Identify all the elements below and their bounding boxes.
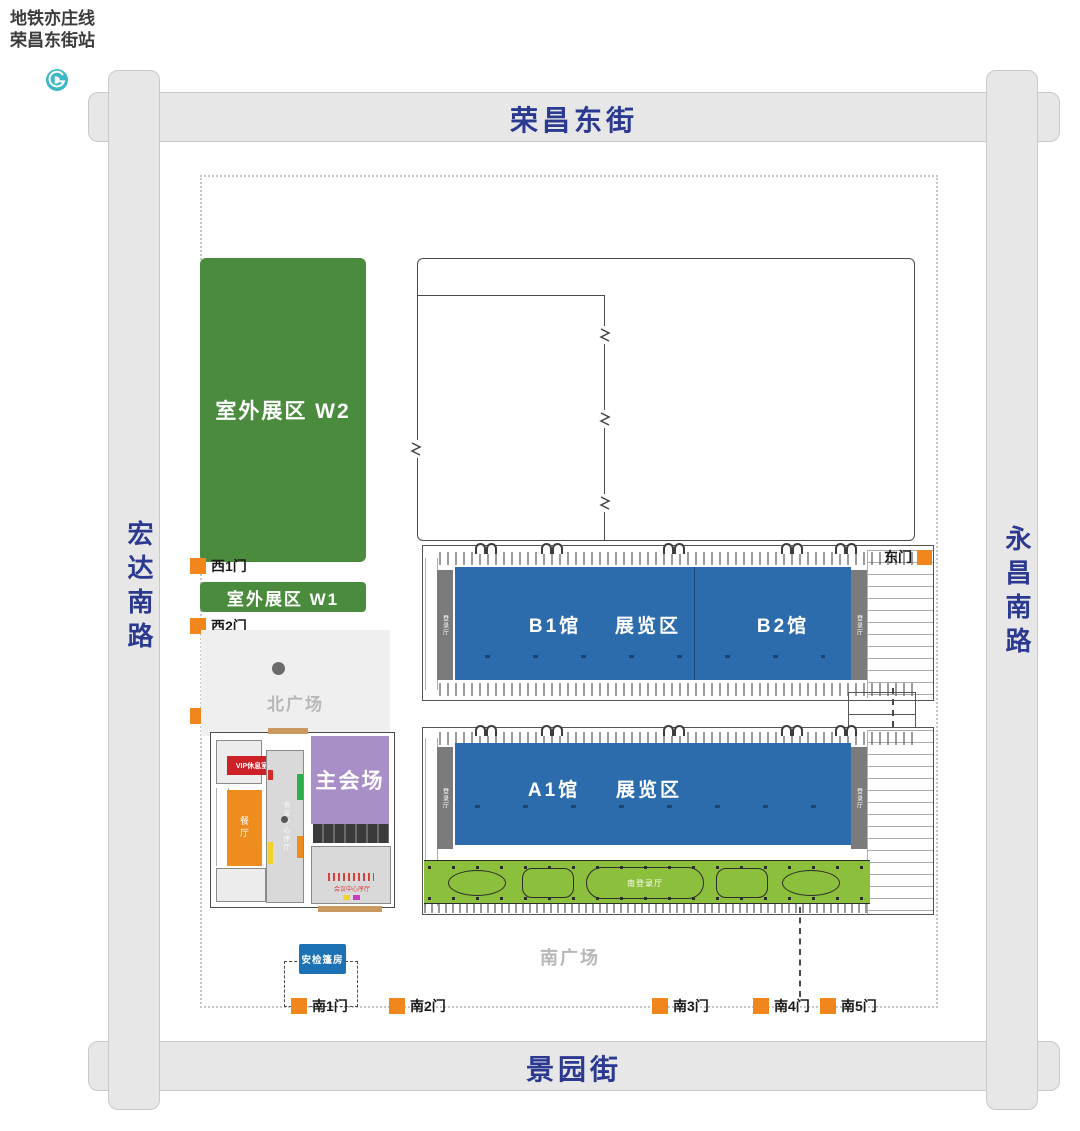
gate-west-1-label: 西1门 <box>211 556 247 576</box>
gate-south-5: 南5门 <box>820 996 877 1016</box>
metro-station-label: 地铁亦庄线 荣昌东街站 <box>10 8 95 52</box>
door-arch-icon <box>781 543 803 554</box>
gate-south-4: 南4门 <box>753 996 810 1016</box>
gate-east: 东门 <box>884 547 932 567</box>
door-arch-icon <box>475 543 497 554</box>
landscape-island <box>716 868 768 898</box>
south-plaza-label: 南广场 <box>515 944 625 970</box>
yellow-accent <box>343 895 350 900</box>
hall-column-dots <box>485 655 825 658</box>
landscape-strip: 南登录厅 <box>424 860 870 904</box>
gate-west-1: 西1门 <box>190 556 247 576</box>
door-arch-icon <box>541 725 563 736</box>
hall-a1-label: A1馆 <box>528 775 580 802</box>
floorplan-detail <box>849 714 915 715</box>
seating-hatch <box>313 824 389 843</box>
break-mark-icon <box>599 410 611 428</box>
planned-building-inner-outline <box>417 295 605 541</box>
north-plaza-dot <box>272 662 285 675</box>
red-tick-row <box>328 873 374 881</box>
door-arch-icon <box>835 725 857 736</box>
south-lobby-label: 南登录厅 <box>627 878 663 889</box>
entrance-canopy <box>318 906 382 912</box>
gate4-dash-line <box>799 907 801 997</box>
north-plaza-label: 北广场 <box>201 690 390 715</box>
break-mark-icon <box>599 326 611 344</box>
outdoor-area-w1-label: 室外展区 W1 <box>227 585 339 610</box>
gate-west-1-marker <box>190 558 206 574</box>
gate-south-2-marker <box>389 998 405 1014</box>
security-tent-label: 安检篷房 <box>301 952 343 966</box>
gate-south-2: 南2门 <box>389 996 446 1016</box>
main-venue: 主会场 <box>311 736 389 824</box>
gate-east-marker <box>917 550 932 565</box>
outdoor-area-w2: 室外展区 W2 <box>200 258 366 562</box>
conference-lobby-label: 会议中心序厅 <box>280 801 290 852</box>
street-label-south: 景园街 <box>88 1048 1060 1088</box>
landscape-island <box>448 870 506 896</box>
floorplan-detail <box>439 683 919 696</box>
registration-strip-label: 登录厅 <box>441 788 450 809</box>
street-label-east: 永昌南路 <box>999 525 1036 661</box>
gate-east-label: 东门 <box>884 547 912 567</box>
security-tent: 安检篷房 <box>299 944 346 974</box>
gate-south-4-marker <box>753 998 769 1014</box>
landscape-island <box>522 868 574 898</box>
floorplan-detail <box>424 904 870 913</box>
door-arch-icon <box>663 725 685 736</box>
registration-strip-label: 登录厅 <box>855 788 864 809</box>
metro-station-name: 荣昌东街站 <box>10 30 95 52</box>
gate-south-2-label: 南2门 <box>410 996 446 1016</box>
gate-south-5-label: 南5门 <box>841 996 877 1016</box>
gate-south-1: 南1门 <box>291 996 348 1016</box>
hall-b2-label: B2馆 <box>757 611 809 638</box>
green-accent <box>297 774 303 800</box>
corridor-dot <box>281 816 288 823</box>
magenta-accent <box>353 895 360 900</box>
hall-column-dots <box>475 805 831 808</box>
restaurant-label: 餐厅 <box>238 816 251 840</box>
door-arch-icon <box>475 725 497 736</box>
gate-south-4-label: 南4门 <box>774 996 810 1016</box>
restaurant: 餐厅 <box>227 790 262 866</box>
street-label-north: 荣昌东街 <box>88 99 1060 139</box>
registration-strip-a-left: 登录厅 <box>437 747 453 849</box>
main-venue-label: 主会场 <box>316 765 385 795</box>
red-accent <box>268 770 273 780</box>
gate-south-3-marker <box>652 998 668 1014</box>
subway-logo-icon <box>46 69 68 91</box>
registration-strip-label: 登录厅 <box>441 615 450 636</box>
north-plaza: 北广场 <box>201 630 390 736</box>
conference-lobby-small-label: 会议中心序厅 <box>312 884 392 893</box>
hall-a-zone-label: 展览区 <box>616 775 682 802</box>
hall-b1-label: B1馆 <box>529 611 581 638</box>
gate-south-1-marker <box>291 998 307 1014</box>
registration-strip-label: 登录厅 <box>855 615 864 636</box>
gate-south-5-marker <box>820 998 836 1014</box>
outdoor-area-w2-label: 室外展区 W2 <box>215 395 350 425</box>
hall-divider <box>694 567 695 680</box>
door-arch-icon <box>835 543 857 554</box>
door-arch-icon <box>663 543 685 554</box>
registration-strip-b-left: 登录厅 <box>437 570 453 680</box>
door-arch-icon <box>781 725 803 736</box>
outdoor-area-w1: 室外展区 W1 <box>200 582 366 612</box>
gate-south-3: 南3门 <box>652 996 709 1016</box>
registration-strip-b-right: 登录厅 <box>851 570 867 680</box>
break-mark-icon <box>410 440 422 458</box>
conference-room-block <box>216 868 266 902</box>
street-label-west: 宏达南路 <box>121 520 158 656</box>
yellow-accent <box>268 842 273 864</box>
gate-south-1-label: 南1门 <box>312 996 348 1016</box>
floorplan-detail <box>867 730 933 914</box>
orange-accent <box>297 836 303 858</box>
gate-south-3-label: 南3门 <box>673 996 709 1016</box>
conference-south-lobby: 会议中心序厅 <box>311 846 391 904</box>
hall-b-zone-label: 展览区 <box>615 611 681 638</box>
hall-a-floor: A1馆 展览区 <box>455 743 851 845</box>
south-lobby: 南登录厅 <box>586 867 704 899</box>
registration-strip-a-right: 登录厅 <box>851 747 867 849</box>
metro-line-name: 地铁亦庄线 <box>10 8 95 30</box>
vip-lounge-label: VIP休息室 <box>236 761 268 771</box>
hall-b-floor: B1馆 展览区 B2馆 <box>455 567 851 680</box>
venue-map: 地铁亦庄线 荣昌东街站 荣昌东街 景园街 宏达南路 永昌南路 室外展区 W2 室… <box>0 0 1080 1131</box>
floorplan-detail <box>867 550 933 698</box>
entrance-canopy <box>268 728 308 734</box>
landscape-island <box>782 870 840 896</box>
door-arch-icon <box>541 543 563 554</box>
break-mark-icon <box>599 494 611 512</box>
